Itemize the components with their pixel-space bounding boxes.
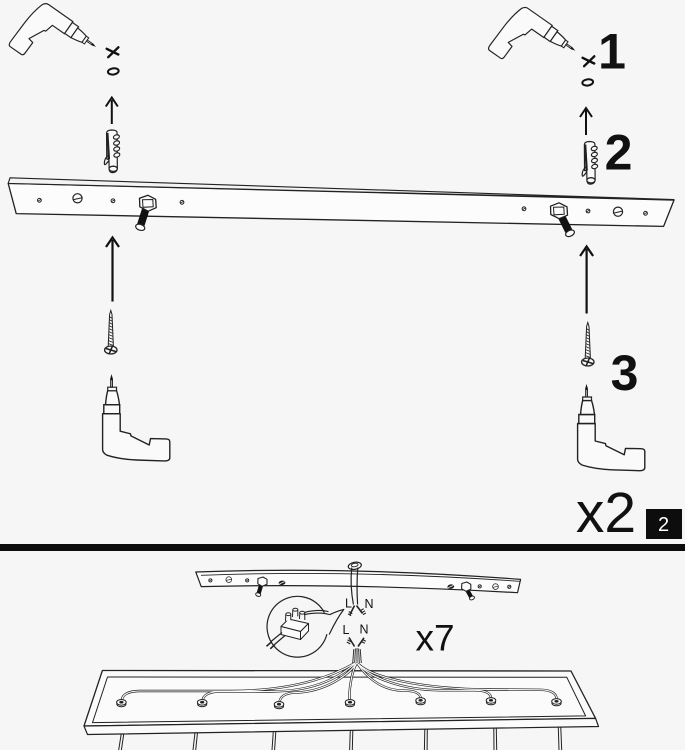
svg-text:N: N (365, 597, 374, 611)
svg-text:2: 2 (605, 125, 633, 181)
svg-text:L: L (345, 597, 352, 611)
svg-text:1: 1 (598, 24, 626, 80)
svg-text:3: 3 (611, 345, 639, 401)
svg-text:x7: x7 (415, 618, 454, 659)
svg-text:L: L (343, 623, 350, 637)
svg-text:x2: x2 (576, 481, 636, 545)
svg-text:N: N (360, 623, 369, 637)
svg-text:2: 2 (658, 514, 669, 536)
